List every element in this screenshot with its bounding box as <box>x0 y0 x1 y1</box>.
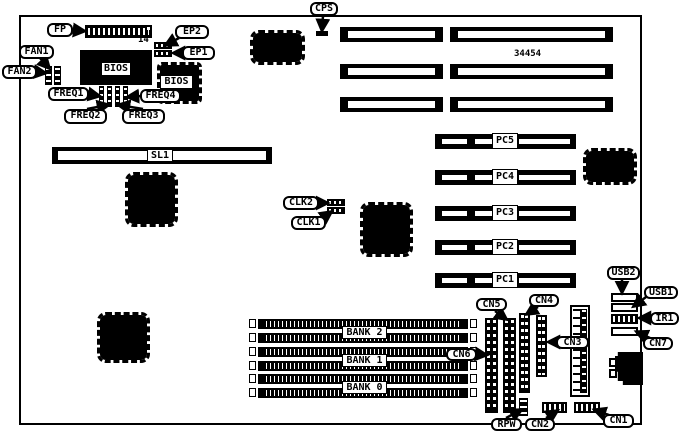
bank1-label: BANK 1 <box>342 354 387 367</box>
freq1-label: FREQ1 <box>48 87 89 101</box>
rpw-label: RPW <box>491 418 522 431</box>
bios-flash-label: BIOS <box>101 62 131 76</box>
ir1-label: IR1 <box>650 312 679 325</box>
leader-line <box>527 307 538 314</box>
leader-line <box>166 38 179 45</box>
usb2-label: USB2 <box>607 266 640 280</box>
cn6-label: CN6 <box>446 348 477 361</box>
ep1-label: EP1 <box>182 46 215 60</box>
ep2-label: EP2 <box>175 25 209 39</box>
cn2-label: CN2 <box>525 418 555 431</box>
sl1-label: SL1 <box>147 149 173 162</box>
freq4-label: FREQ4 <box>140 89 181 103</box>
leader-line <box>546 411 557 418</box>
leader-line <box>37 72 45 73</box>
leader-line <box>476 354 486 355</box>
leader-line <box>324 212 331 217</box>
cn4-label: CN4 <box>529 294 559 307</box>
cps-label: CPS <box>310 2 338 16</box>
freq3-label: FREQ3 <box>122 109 165 124</box>
clk2-label: CLK2 <box>283 196 319 210</box>
leader-line <box>88 94 99 96</box>
cn7-label: CN7 <box>643 337 673 350</box>
freq2-label: FREQ2 <box>64 109 107 124</box>
cn3-label: CN3 <box>556 336 589 349</box>
bank0-label: BANK 0 <box>342 381 387 394</box>
cn1-label: CN1 <box>603 414 634 428</box>
bios-socket-label: BIOS <box>160 75 193 89</box>
fan1-label: FAN1 <box>19 45 54 59</box>
leader-line <box>495 311 506 319</box>
leader-line <box>634 297 646 306</box>
fan2-label: FAN2 <box>2 65 37 79</box>
clk1-label: CLK1 <box>291 216 326 230</box>
fp-label: FP <box>47 23 73 37</box>
motherboard-layout-diagram: 14 34454 SL1 PC5 PC4 PC3 PC2 PC1 <box>0 0 681 436</box>
leader-line <box>40 58 49 68</box>
leader-line <box>73 30 84 31</box>
usb1-label: USB1 <box>644 286 678 299</box>
cn5-label: CN5 <box>476 298 507 311</box>
leader-line <box>322 16 323 30</box>
leader-line <box>506 410 521 418</box>
bank2-label: BANK 2 <box>342 326 387 339</box>
